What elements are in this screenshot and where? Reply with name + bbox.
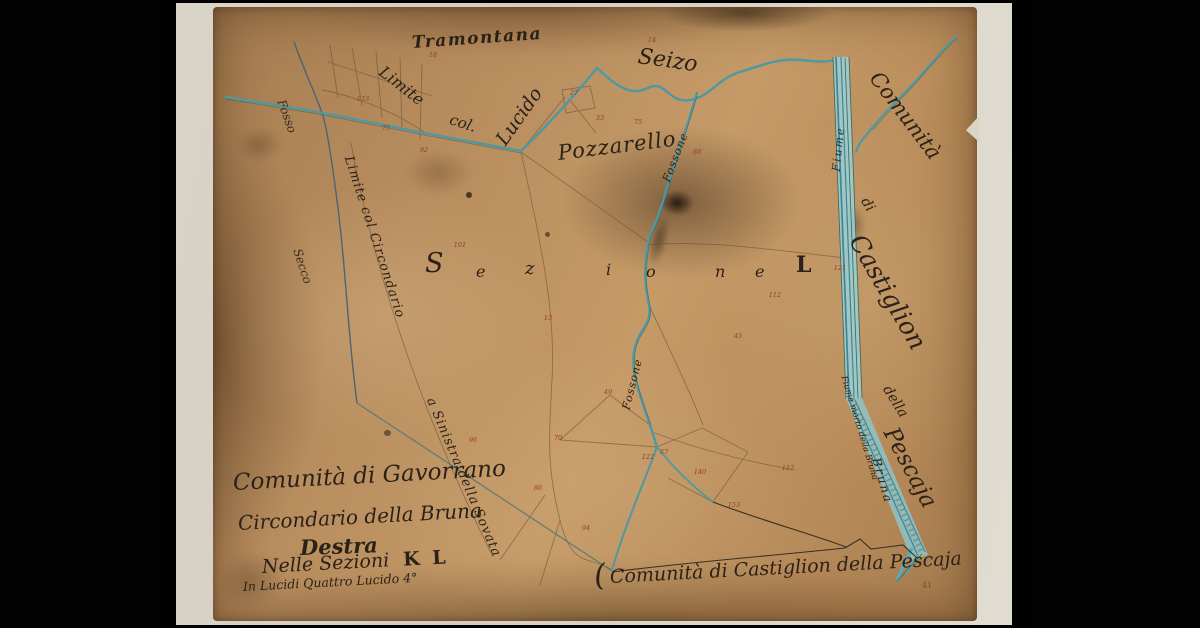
map-linework bbox=[0, 0, 1200, 628]
scanned-cadastral-map: Tramontana Limite col. Lucido Seizo Pozz… bbox=[0, 0, 1200, 628]
parcel-number: 112 bbox=[769, 292, 781, 299]
parcel-number: 45 bbox=[734, 333, 742, 340]
parcel-number: 14 bbox=[648, 37, 656, 44]
parcel-number: 140 bbox=[694, 469, 706, 476]
parcel-number: 101 bbox=[454, 242, 466, 249]
parcel-number: 153 bbox=[728, 502, 740, 509]
sezione-letter: i bbox=[606, 262, 611, 278]
sezione-letter: o bbox=[646, 264, 656, 280]
bruna-canal bbox=[833, 57, 862, 398]
sezione-letter: L bbox=[796, 254, 811, 276]
parcel-number: 27 bbox=[570, 90, 578, 97]
parcel-number: 18 bbox=[429, 52, 437, 59]
parcel-number: 75 bbox=[382, 125, 390, 132]
parcel-number: 121 bbox=[834, 265, 846, 272]
sezione-letter: e bbox=[476, 264, 485, 280]
parcel-number: 49 bbox=[604, 389, 612, 396]
sezione-letter: z bbox=[525, 260, 534, 278]
parcel-number: 13 bbox=[544, 315, 552, 322]
parcel-number: 94 bbox=[582, 525, 590, 532]
parcel-number: 122 bbox=[642, 454, 654, 461]
parcel-number: 57 bbox=[660, 449, 668, 456]
parcel-number: 75 bbox=[634, 119, 642, 126]
sezione-letter: n bbox=[715, 264, 725, 280]
title-line-4b: K L bbox=[403, 546, 450, 570]
sezione-letter: e bbox=[755, 264, 764, 280]
parcel-number: 88 bbox=[693, 149, 701, 156]
parcel-number: 70 bbox=[554, 435, 562, 442]
parcel-number: 96 bbox=[469, 437, 477, 444]
parcel-number: 33 bbox=[596, 115, 604, 122]
corner-mark: 41 bbox=[922, 582, 932, 590]
parcel-number: 117 bbox=[782, 465, 794, 472]
sezione-letter: S bbox=[425, 250, 444, 277]
parcel-number: 92 bbox=[420, 147, 428, 154]
parcel-number: 86 bbox=[534, 485, 542, 492]
parcel-number: 133 bbox=[357, 96, 369, 103]
